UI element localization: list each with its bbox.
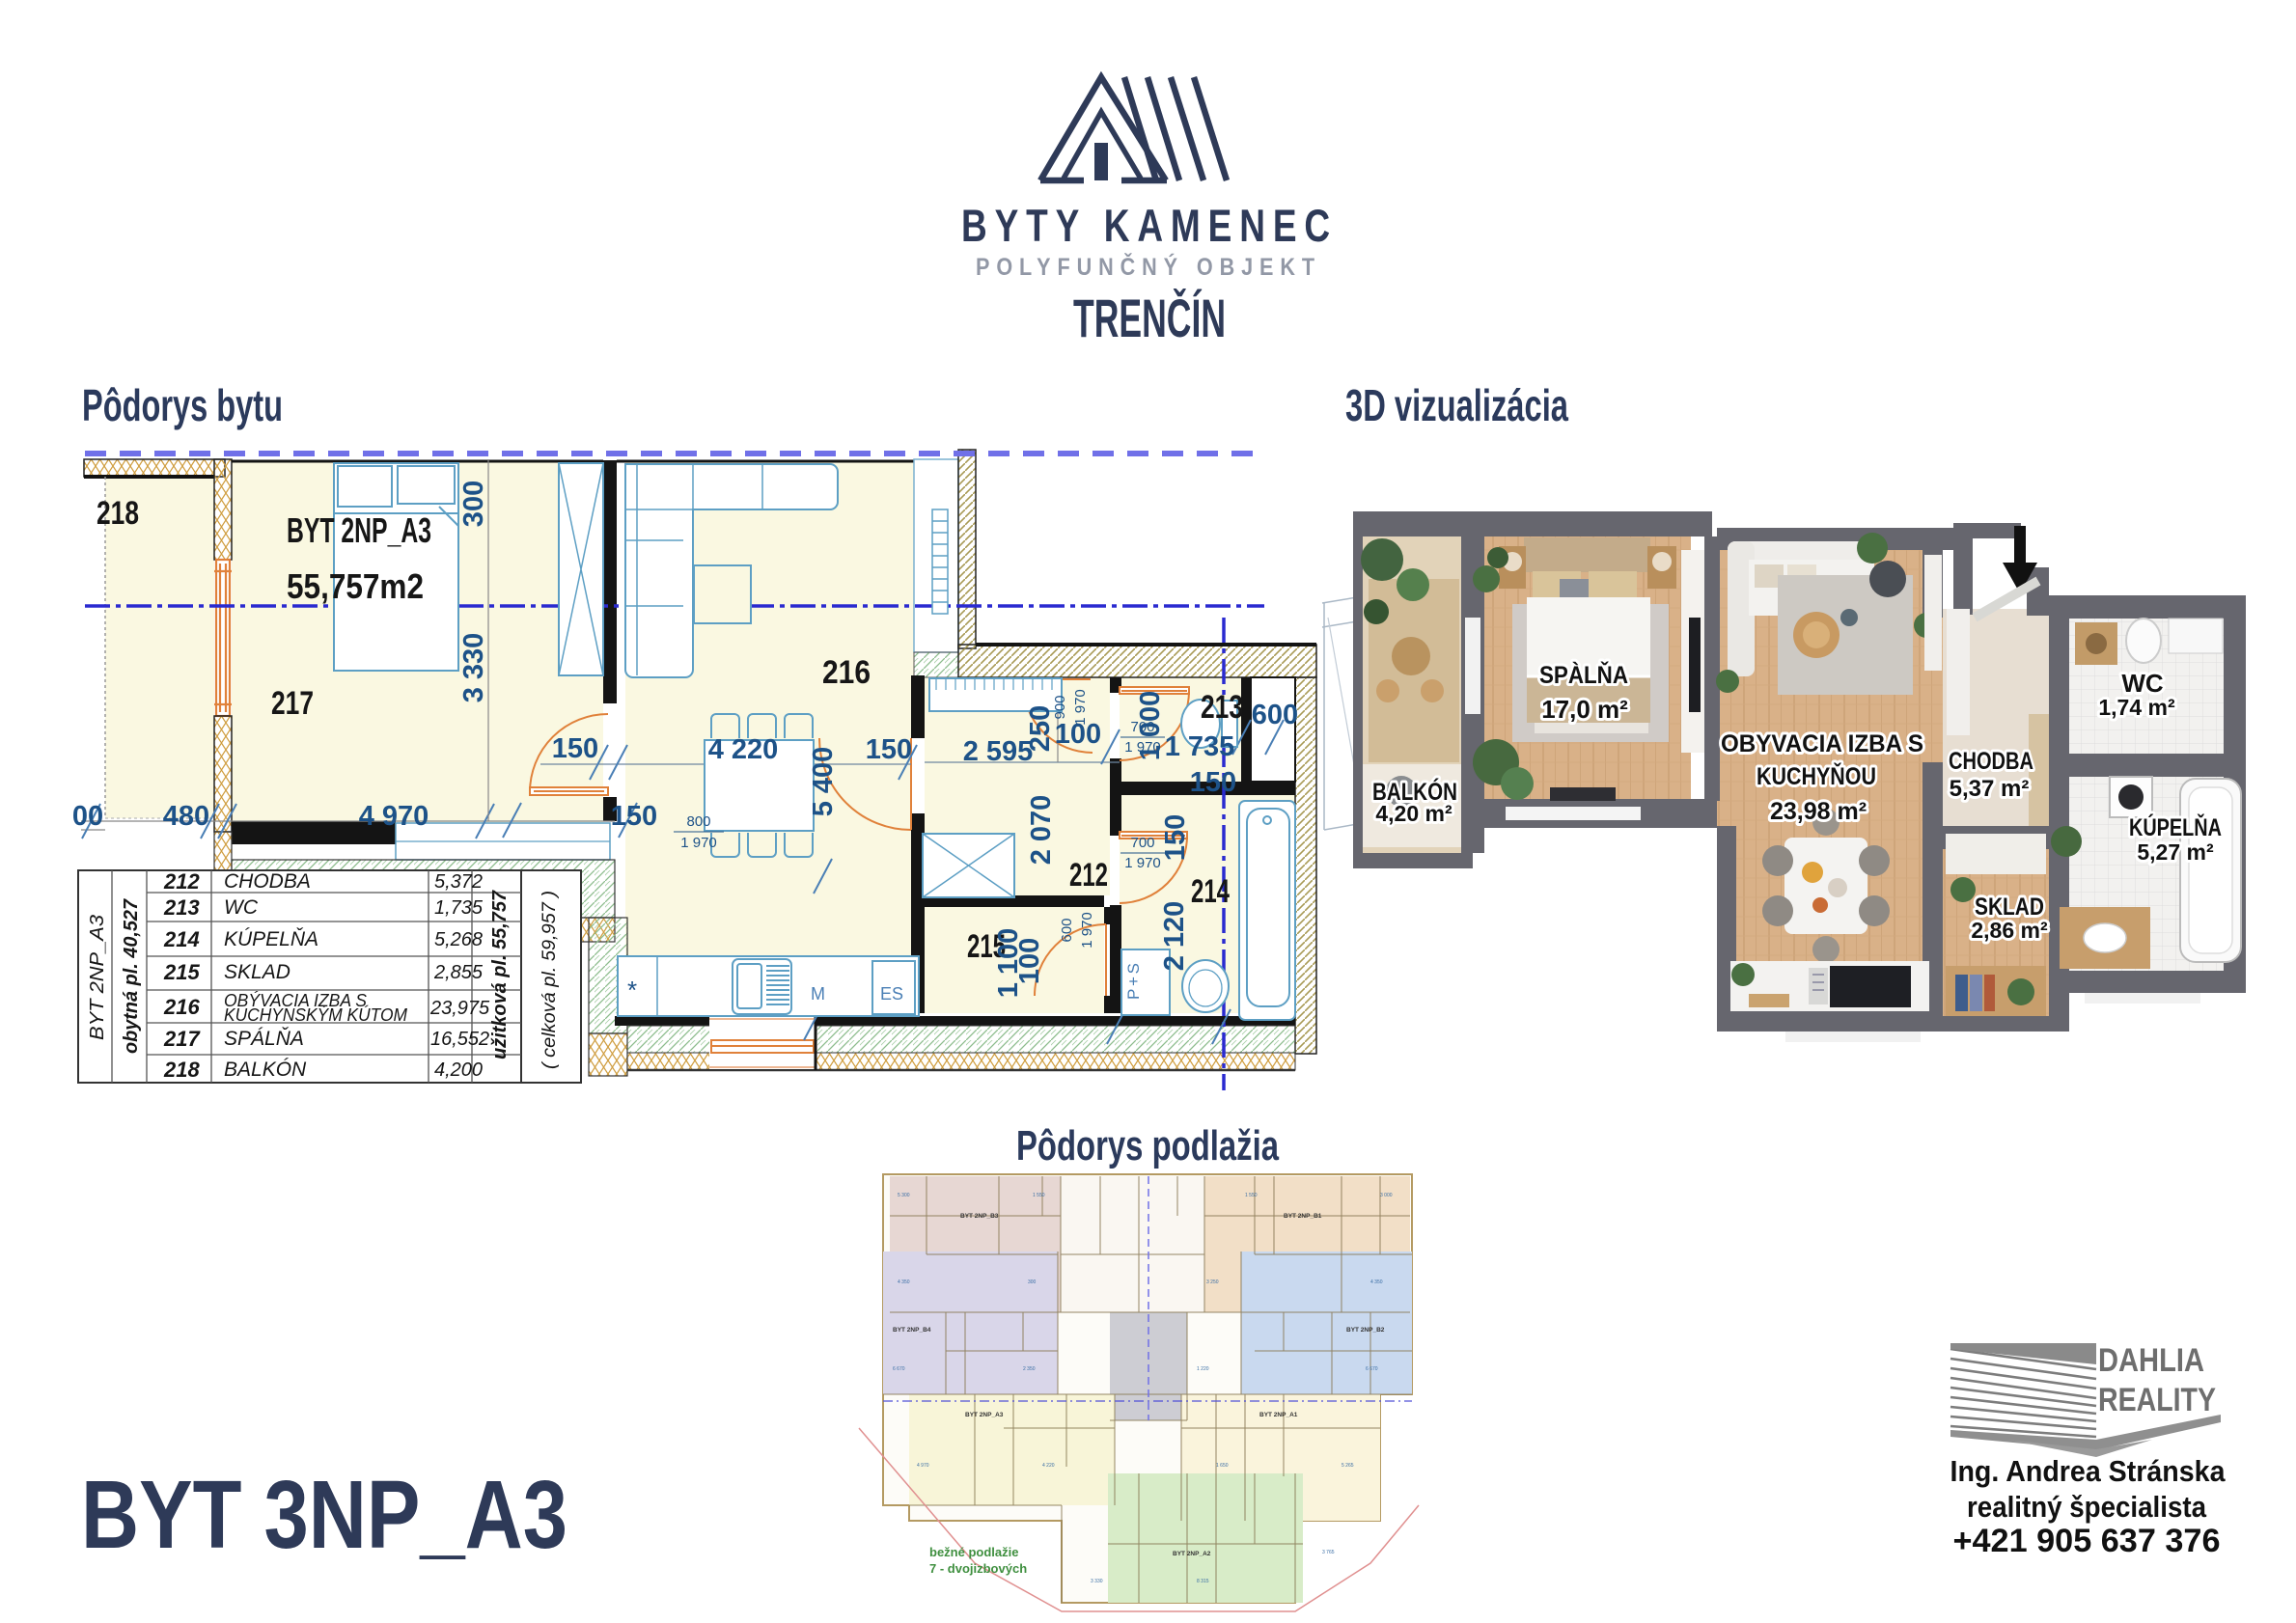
svg-text:212: 212 [1069,857,1108,894]
svg-text:BYT 2NP_A3: BYT 2NP_A3 [87,915,108,1040]
svg-text:BALKÓN: BALKÓN [224,1059,307,1081]
svg-text:Pôdorys podlažia: Pôdorys podlažia [1016,1122,1279,1169]
svg-text:BYT 2NP_A3: BYT 2NP_A3 [287,510,431,550]
svg-text:5 400: 5 400 [808,747,839,817]
svg-text:4 220: 4 220 [708,734,779,765]
svg-text:3D vizualizácia: 3D vizualizácia [1345,380,1568,430]
svg-text:Pôdorys bytu: Pôdorys bytu [82,380,283,430]
svg-text:100: 100 [1014,938,1045,984]
svg-text:2 350: 2 350 [1023,1366,1036,1372]
svg-text:2,855: 2,855 [433,962,484,983]
svg-text:4 970: 4 970 [917,1463,929,1469]
svg-text:212: 212 [163,869,200,894]
svg-text:WC: WC [2121,669,2164,698]
svg-text:BYT 2NP_A3: BYT 2NP_A3 [965,1412,1004,1418]
svg-text:17,0 m²: 17,0 m² [1541,695,1628,724]
svg-text:3 765: 3 765 [1322,1550,1335,1555]
svg-text:214: 214 [163,927,200,951]
svg-text:BYT 2NP_B3: BYT 2NP_B3 [960,1213,999,1220]
svg-text:150: 150 [866,734,912,765]
svg-text:obytná pl. 40,527: obytná pl. 40,527 [121,898,142,1054]
svg-text:213: 213 [1201,689,1243,726]
svg-text:3 000: 3 000 [1380,1193,1393,1198]
svg-text:217: 217 [163,1027,201,1051]
svg-text:2 595: 2 595 [963,736,1034,767]
svg-text:4 350: 4 350 [898,1279,910,1285]
svg-text:6 670: 6 670 [1366,1366,1378,1372]
svg-text:5,27 m²: 5,27 m² [2137,839,2214,865]
svg-text:SPÀLŇA: SPÀLŇA [1539,660,1628,689]
svg-text:216: 216 [163,995,200,1019]
svg-text:2,86 m²: 2,86 m² [1971,918,2048,943]
svg-text:3 330: 3 330 [458,633,489,703]
svg-text:6 670: 6 670 [893,1366,905,1372]
svg-text:23,98 m²: 23,98 m² [1770,798,1867,825]
svg-text:SKLAD: SKLAD [224,961,290,983]
svg-text:8 315: 8 315 [1197,1579,1209,1584]
svg-text:3 250: 3 250 [1206,1279,1219,1285]
svg-text:150: 150 [1190,767,1236,798]
svg-text:150: 150 [611,801,657,832]
svg-text:600: 600 [1252,700,1298,730]
svg-text:55,757m2: 55,757m2 [287,566,424,606]
svg-text:1,735: 1,735 [434,897,484,919]
svg-text:CHODBA: CHODBA [1949,748,2033,775]
svg-text:2 120: 2 120 [1159,901,1190,972]
svg-text:KÚPELŇA: KÚPELŇA [224,928,318,950]
svg-text:4 970: 4 970 [359,801,429,832]
svg-text:1 970: 1 970 [680,835,717,851]
svg-text:bežné podlažie: bežné podlažie [929,1545,1018,1559]
svg-text:SPÁLŇA: SPÁLŇA [224,1028,304,1050]
svg-text:*: * [627,976,637,1004]
svg-text:WC: WC [224,896,259,919]
svg-text:1 550: 1 550 [1245,1193,1258,1198]
svg-text:BYT 2NP_B2: BYT 2NP_B2 [1346,1327,1385,1334]
svg-text:M: M [811,984,825,1004]
svg-text:BYT 2NP_B4: BYT 2NP_B4 [893,1327,931,1334]
svg-text:1 970: 1 970 [1072,689,1089,726]
svg-text:SKLAD: SKLAD [1975,894,2044,921]
svg-text:213: 213 [163,895,200,920]
svg-text:3 330: 3 330 [1091,1579,1103,1584]
svg-text:800: 800 [686,813,710,830]
svg-text:1 970: 1 970 [1124,739,1161,756]
svg-text:P+S: P+S [1124,963,1143,1000]
svg-text:( celková pl. 59,957 ): ( celková pl. 59,957 ) [539,891,560,1069]
svg-text:4,200: 4,200 [434,1059,483,1081]
svg-text:700: 700 [1130,835,1154,851]
svg-text:1 550: 1 550 [1033,1193,1045,1198]
svg-text:480: 480 [163,801,209,832]
svg-text:1 220: 1 220 [1197,1366,1209,1372]
svg-text:1 970: 1 970 [1079,912,1095,949]
svg-text:23,975: 23,975 [429,998,490,1019]
svg-text:7 - dvojizbových: 7 - dvojizbových [929,1561,1027,1576]
svg-text:realitný špecialista: realitný špecialista [1967,1490,2207,1524]
svg-text:KUCHYŇOU: KUCHYŇOU [1757,761,1876,790]
svg-text:216: 216 [822,654,871,691]
svg-text:užitková pl. 55,757: užitková pl. 55,757 [489,890,511,1059]
svg-text:218: 218 [97,495,139,532]
svg-text:KUCHYNSKÝM KÚTOM: KUCHYNSKÝM KÚTOM [224,1004,407,1025]
svg-text:BYT 2NP_B1: BYT 2NP_B1 [1284,1213,1322,1220]
svg-text:1 735: 1 735 [1165,731,1235,762]
svg-text:4 350: 4 350 [1370,1279,1383,1285]
svg-text:4,20 m²: 4,20 m² [1375,801,1452,826]
svg-text:1 970: 1 970 [1124,855,1161,871]
svg-text:00: 00 [72,801,103,832]
svg-text:600: 600 [1059,918,1075,942]
svg-text:218: 218 [163,1058,200,1082]
svg-text:4 220: 4 220 [1042,1463,1055,1469]
svg-text:700: 700 [1130,719,1154,735]
svg-text:BYT 2NP_A2: BYT 2NP_A2 [1173,1551,1211,1557]
svg-text:REALITY: REALITY [2098,1382,2216,1418]
svg-text:CHODBA: CHODBA [224,870,311,893]
svg-text:OBYVACIA IZBA S: OBYVACIA IZBA S [1721,730,1923,757]
svg-text:ES: ES [880,984,903,1004]
svg-text:5,37 m²: 5,37 m² [1950,776,2030,802]
svg-text:KÚPELŇA: KÚPELŇA [2129,812,2222,841]
svg-text:BYT 3NP_A3: BYT 3NP_A3 [81,1461,567,1569]
svg-text:300: 300 [1028,1279,1037,1285]
svg-text:POLYFUNČNÝ OBJEKT: POLYFUNČNÝ OBJEKT [976,252,1321,281]
svg-text:150: 150 [1160,814,1191,861]
svg-text:900: 900 [1052,695,1068,719]
svg-text:215: 215 [163,960,200,984]
svg-text:TRENČÍN: TRENČÍN [1073,288,1226,348]
svg-text:300: 300 [458,481,489,527]
svg-text:1 650: 1 650 [1216,1463,1229,1469]
svg-text:+421 905 637 376: +421 905 637 376 [1953,1523,2221,1559]
svg-text:16,552: 16,552 [430,1029,489,1050]
svg-text:Ing. Andrea Stránska: Ing. Andrea Stránska [1950,1454,2227,1488]
svg-text:DAHLIA: DAHLIA [2098,1342,2204,1379]
svg-text:214: 214 [1191,873,1230,910]
svg-text:BYT 2NP_A1: BYT 2NP_A1 [1259,1412,1298,1418]
svg-text:5,372: 5,372 [434,871,483,893]
svg-text:5 265: 5 265 [1342,1463,1354,1469]
svg-text:5,268: 5,268 [434,929,483,950]
svg-text:BYTY KAMENEC: BYTY KAMENEC [961,200,1338,251]
svg-text:150: 150 [552,733,598,764]
svg-text:217: 217 [271,685,314,722]
svg-text:5 300: 5 300 [898,1193,910,1198]
svg-text:2 070: 2 070 [1026,795,1057,866]
svg-text:1,74 m²: 1,74 m² [2098,695,2175,720]
